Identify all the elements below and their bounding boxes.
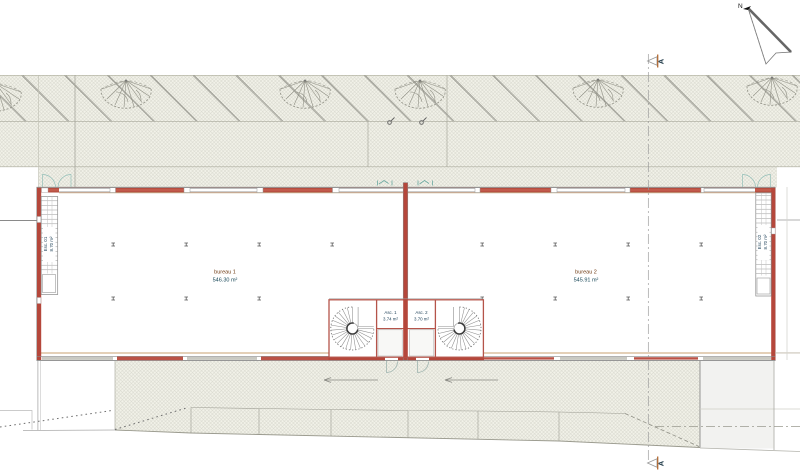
svg-text:8.70 m²: 8.70 m² [49, 236, 54, 251]
svg-text:bureau 2: bureau 2 [575, 270, 597, 276]
svg-text:bureau 1: bureau 1 [214, 270, 236, 276]
svg-text:8.70 m²: 8.70 m² [763, 234, 768, 249]
svg-text:545.91 m²: 545.91 m² [574, 278, 599, 284]
svg-text:A: A [657, 58, 666, 64]
svg-text:Asc. 1: Asc. 1 [384, 310, 397, 315]
svg-text:N: N [738, 3, 743, 10]
svg-text:Esc. 01: Esc. 01 [43, 236, 48, 251]
svg-text:A: A [657, 460, 666, 466]
svg-text:Asc. 2: Asc. 2 [415, 310, 428, 315]
svg-text:Esc. 02: Esc. 02 [757, 234, 762, 249]
svg-text:3.74 m²: 3.74 m² [383, 317, 398, 322]
svg-text:546.30 m²: 546.30 m² [213, 278, 238, 284]
svg-text:3.70 m²: 3.70 m² [414, 317, 429, 322]
